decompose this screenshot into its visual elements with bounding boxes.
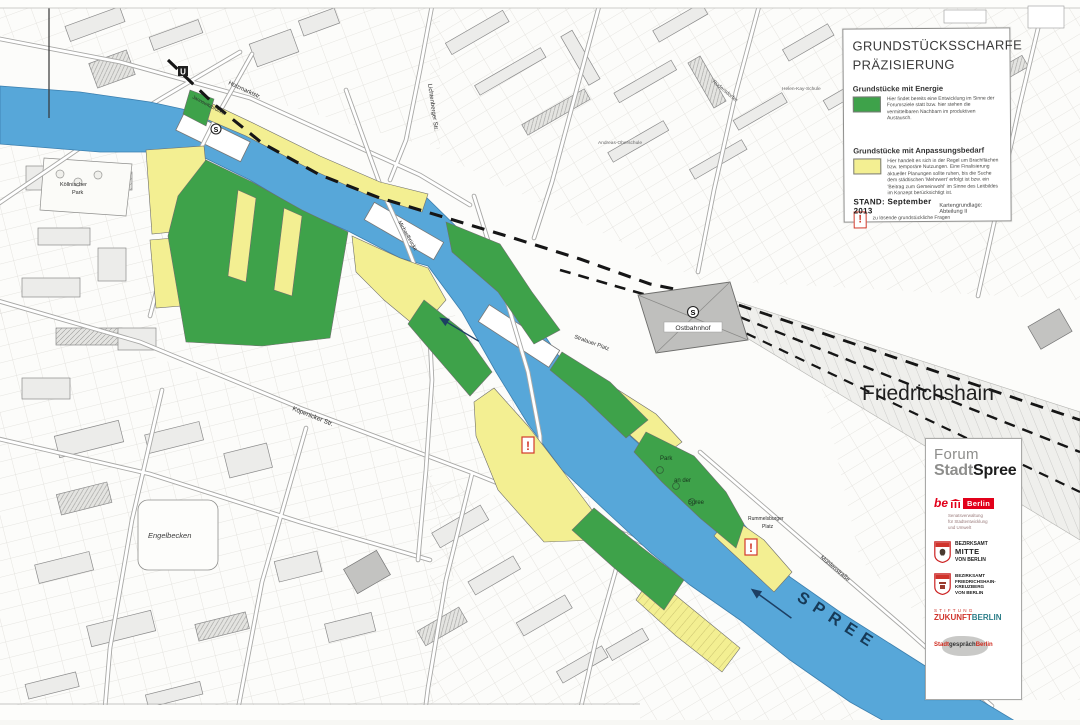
scanned-planning-map: S Ostbahnhof Friedrichshain SPREE Engelb… <box>0 0 1080 720</box>
friedrichshain-label: Friedrichshain <box>862 382 994 405</box>
legend-adaptation-heading: Grundstücke mit Anpassungsbedarf <box>853 145 1001 155</box>
fk-crest-icon <box>934 573 951 595</box>
helen-kay-label: Helen-Kay-Schule <box>782 86 821 92</box>
legend-energy-heading: Grundstücke mit Energie <box>853 83 1001 93</box>
svg-text:S: S <box>214 127 219 134</box>
forum-panel: Forum StadtSpree be Berlin Senatsverwalt… <box>925 438 1022 700</box>
legend-map-basis: Kartengrundlage: Abteilung II <box>939 202 1001 214</box>
svg-text:U: U <box>180 68 186 77</box>
legend-title-line2: PRÄZISIERUNG <box>853 55 1001 75</box>
park-label1: Park <box>660 456 673 462</box>
rummelsburger-label2: Platz <box>762 524 774 530</box>
legend-stand-date: STAND: September 2013 <box>854 197 940 216</box>
bezirksamt-fk-logo: BEZIRKSAMT FRIEDRICHSHAIN- KREUZBERG VON… <box>934 573 1013 596</box>
legend-title-line1: GRUNDSTÜCKSSCHARFE <box>852 36 1000 56</box>
senat-subtitle: Senatsverwaltung für Stadtentwicklung un… <box>948 513 1013 531</box>
andreas-schule-label: Andreas-Oberschule <box>598 140 642 146</box>
issue-marker-2: ! <box>745 539 757 555</box>
forum-title-line1: Forum <box>934 446 1013 463</box>
svg-text:!: ! <box>526 439 530 453</box>
mitte-crest-icon <box>934 541 951 563</box>
legend-adaptation-swatch <box>853 158 881 174</box>
rummelsburger-label1: Rummelsburger <box>748 516 784 522</box>
legend-energy-swatch <box>853 96 881 112</box>
stiftung-zukunft-logo: STIFTUNG ZUKUNFTBERLIN <box>934 608 1013 622</box>
forum-title-line2: StadtSpree <box>934 462 1013 480</box>
be-berlin-logo: be Berlin <box>934 496 1013 510</box>
legend-panel: GRUNDSTÜCKSSCHARFE PRÄZISIERUNG Grundstü… <box>842 27 1011 222</box>
bezirksamt-mitte-logo: BEZIRKSAMT MITTE VON BERLIN <box>934 541 1013 563</box>
legend-alert-description: zu lösende grundstückliche Fragen <box>873 215 951 222</box>
issue-marker-1: ! <box>522 437 534 453</box>
svg-text:!: ! <box>749 541 753 555</box>
brandenburg-gate-icon <box>950 499 961 508</box>
engelbecken-label: Engelbecken <box>148 531 191 540</box>
legend-energy-description: Hier findet bereits eine Entwicklung im … <box>887 95 1001 122</box>
koellnischer-park-label1: Köllnischer <box>60 182 87 188</box>
park-label2: an der <box>674 478 691 484</box>
koellnischer-park-label2: Park <box>72 190 84 196</box>
svg-text:S: S <box>690 308 695 317</box>
park-label3: Spree <box>688 500 705 506</box>
ostbahnhof-label: Ostbahnhof <box>675 325 710 332</box>
ostbahnhof-station: S Ostbahnhof <box>638 282 748 353</box>
stadtgespraech-logo: StadtgesprächBerlin <box>934 636 1013 658</box>
legend-adaptation-description: Hier handelt es sich in der Regel um Bra… <box>887 157 1001 197</box>
